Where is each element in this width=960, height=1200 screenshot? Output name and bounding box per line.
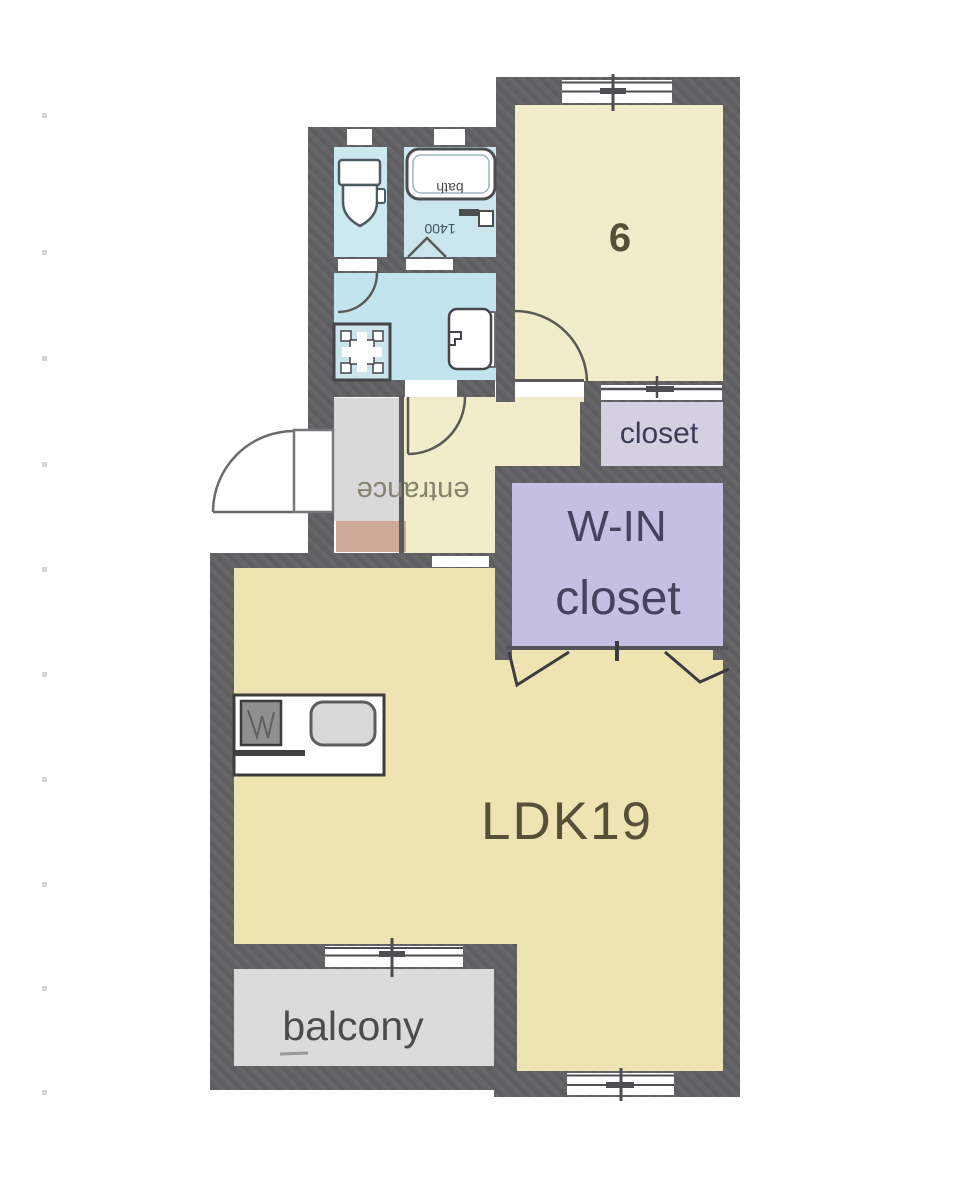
svg-text:W-IN: W-IN [567, 502, 666, 551]
svg-text:balcony: balcony [282, 1003, 424, 1049]
svg-text:entrance: entrance [357, 475, 470, 507]
svg-text:closet: closet [620, 417, 699, 450]
svg-text:1400: 1400 [424, 221, 455, 237]
svg-text:LDK19: LDK19 [481, 792, 653, 851]
svg-text:6: 6 [609, 216, 631, 260]
svg-text:closet: closet [555, 572, 680, 625]
svg-text:bath: bath [436, 180, 463, 196]
